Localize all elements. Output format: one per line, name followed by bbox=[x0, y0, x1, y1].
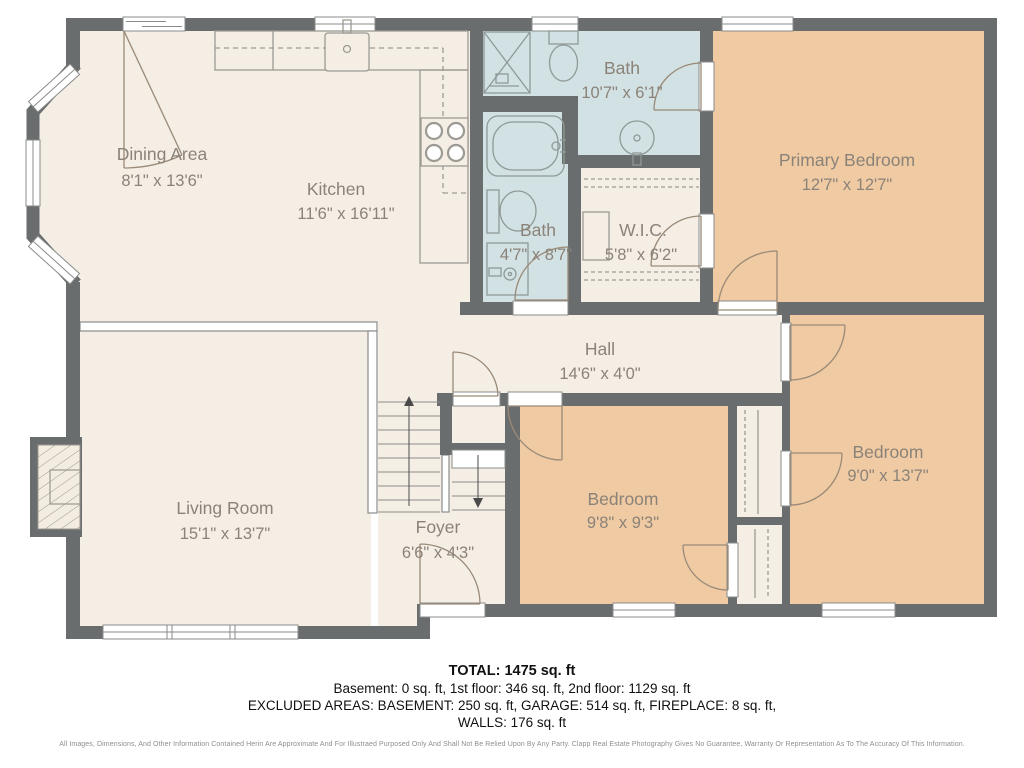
living-room-window bbox=[103, 625, 298, 639]
dims-bath-1: 10'7" x 6'1" bbox=[581, 84, 662, 102]
wall-right bbox=[984, 18, 997, 617]
wall-under-shower bbox=[470, 96, 578, 112]
dims-dining: 8'1" x 13'6" bbox=[121, 172, 202, 190]
total-area: TOTAL: 1475 sq. ft bbox=[0, 662, 1024, 680]
wall-left-top bbox=[66, 18, 80, 68]
hall-closet-door-sill bbox=[453, 392, 500, 406]
floor-plan: Dining Area 8'1" x 13'6" Kitchen 11'6" x… bbox=[0, 0, 1024, 660]
label-bath-1: Bath bbox=[604, 58, 640, 78]
bedroom-2-window bbox=[822, 603, 895, 617]
walls-area: WALLS: 176 sq. ft bbox=[0, 714, 1024, 731]
wall-left-bottom bbox=[66, 535, 80, 639]
label-primary-bedroom: Primary Bedroom bbox=[779, 150, 915, 170]
stair-rail bbox=[442, 455, 449, 512]
dims-primary-bedroom: 12'7" x 12'7" bbox=[802, 176, 893, 194]
wall-bath2-wic bbox=[568, 158, 581, 302]
primary-bedroom-window bbox=[722, 17, 793, 31]
area-summary: TOTAL: 1475 sq. ft Basement: 0 sq. ft, 1… bbox=[0, 662, 1024, 731]
label-bedroom-2: Bedroom bbox=[852, 442, 923, 462]
front-door-sill bbox=[420, 603, 485, 617]
half-wall-living-stairs bbox=[368, 331, 377, 513]
dims-hall: 14'6" x 4'0" bbox=[559, 365, 640, 383]
label-kitchen: Kitchen bbox=[307, 179, 365, 199]
excluded-areas: EXCLUDED AREAS: BASEMENT: 250 sq. ft, GA… bbox=[0, 697, 1024, 714]
wall-kitchen-bath bbox=[470, 31, 483, 302]
dims-bath-2: 4'7" x 8'7" bbox=[500, 246, 572, 264]
label-bedroom-1: Bedroom bbox=[587, 489, 658, 509]
wall-hall-top-a bbox=[460, 302, 513, 315]
floor-plan-page: Dining Area 8'1" x 13'6" Kitchen 11'6" x… bbox=[0, 0, 1024, 768]
dims-wic: 5'8" x 6'2" bbox=[605, 246, 677, 264]
bay-window-center bbox=[26, 140, 40, 206]
disclaimer: All Images, Dimensions, And Other Inform… bbox=[0, 741, 1024, 748]
label-foyer: Foyer bbox=[416, 517, 461, 537]
bath-window bbox=[532, 17, 578, 31]
dims-foyer: 6'6" x 4'3" bbox=[402, 544, 474, 562]
dims-bedroom-1: 9'8" x 9'3" bbox=[587, 514, 659, 532]
room-living-floor bbox=[80, 331, 371, 626]
label-dining: Dining Area bbox=[117, 144, 208, 164]
bedroom-1-window bbox=[613, 603, 675, 617]
wall-bottom-right bbox=[417, 604, 997, 617]
half-wall-dining-living bbox=[80, 322, 377, 331]
wall-closet-mid bbox=[728, 517, 790, 525]
wall-hall-top-b bbox=[568, 302, 718, 315]
dims-bedroom-2: 9'0" x 13'7" bbox=[847, 467, 928, 485]
bath-2-floor bbox=[483, 112, 568, 302]
patio-door-opening bbox=[123, 17, 185, 31]
label-hall: Hall bbox=[585, 339, 615, 359]
dims-living-room: 15'1" x 13'7" bbox=[180, 525, 271, 543]
floor-areas: Basement: 0 sq. ft, 1st floor: 346 sq. f… bbox=[0, 680, 1024, 697]
wall-hall-bottom-c bbox=[562, 393, 790, 406]
wall-foyer-bedroom bbox=[505, 393, 520, 604]
fireplace bbox=[30, 437, 82, 537]
stove-icon bbox=[421, 118, 468, 166]
bedroom-1-door-sill bbox=[508, 392, 562, 406]
label-living-room: Living Room bbox=[176, 498, 273, 518]
wall-hall-top-c bbox=[777, 302, 984, 315]
kitchen-window bbox=[315, 17, 375, 31]
bath-2-door-sill bbox=[513, 301, 568, 315]
dims-kitchen: 11'6" x 16'11" bbox=[297, 205, 394, 223]
label-wic: W.I.C. bbox=[619, 220, 667, 240]
primary-door-sill bbox=[718, 301, 777, 315]
wall-left-mid bbox=[66, 282, 80, 440]
label-bath-2: Bath bbox=[520, 220, 556, 240]
